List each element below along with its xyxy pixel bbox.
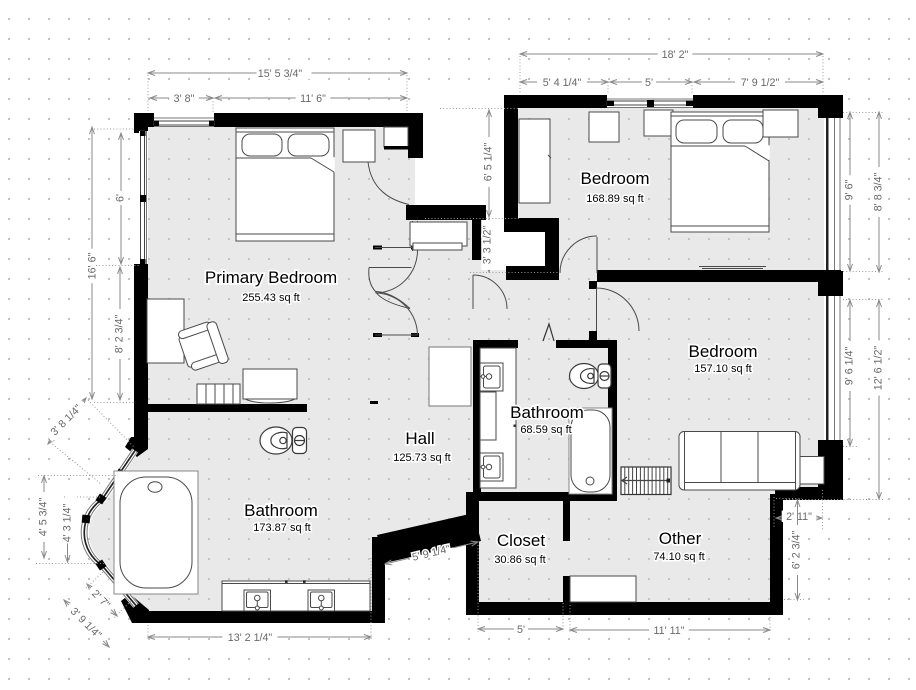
svg-text:Bedroom: Bedroom [581, 169, 650, 188]
svg-text:7' 9 1/2": 7' 9 1/2" [741, 77, 780, 89]
svg-text:9' 6 1/4": 9' 6 1/4" [844, 347, 856, 386]
svg-text:11' 11": 11' 11" [654, 625, 685, 637]
svg-text:4' 5 3/4": 4' 5 3/4" [38, 498, 50, 537]
svg-text:12' 6 1/2": 12' 6 1/2" [873, 346, 885, 391]
svg-text:Closet: Closet [497, 531, 545, 550]
svg-text:15' 5 3/4": 15' 5 3/4" [258, 68, 303, 80]
svg-text:13' 2 1/4": 13' 2 1/4" [228, 632, 273, 644]
svg-text:5': 5' [645, 77, 653, 89]
svg-text:Bathroom: Bathroom [244, 501, 318, 520]
svg-text:5': 5' [517, 624, 525, 636]
svg-text:8' 2 3/4": 8' 2 3/4" [114, 315, 126, 354]
svg-text:4' 3 1/4": 4' 3 1/4" [62, 504, 74, 543]
svg-text:168.89 sq ft: 168.89 sq ft [586, 193, 644, 205]
svg-text:6': 6' [115, 194, 127, 202]
svg-text:125.73 sq ft: 125.73 sq ft [393, 452, 451, 464]
svg-text:3' 3 1/2": 3' 3 1/2" [482, 226, 494, 265]
svg-text:Bathroom: Bathroom [510, 403, 584, 422]
svg-text:157.10 sq ft: 157.10 sq ft [694, 363, 752, 375]
svg-text:6' 5 1/4": 6' 5 1/4" [483, 143, 495, 182]
svg-text:Primary Bedroom: Primary Bedroom [205, 268, 337, 287]
svg-text:6' 2 3/4": 6' 2 3/4" [791, 531, 803, 570]
svg-text:Bedroom: Bedroom [689, 342, 758, 361]
svg-text:2' 11": 2' 11" [786, 511, 812, 523]
svg-text:11' 6": 11' 6" [300, 93, 326, 105]
svg-text:9' 6": 9' 6" [844, 179, 856, 200]
svg-text:68.59 sq ft: 68.59 sq ft [520, 424, 571, 436]
svg-text:173.87 sq ft: 173.87 sq ft [253, 522, 311, 534]
svg-text:Other: Other [659, 529, 702, 548]
svg-text:18' 2": 18' 2" [662, 49, 689, 61]
svg-text:255.43 sq ft: 255.43 sq ft [242, 292, 300, 304]
svg-text:74.10 sq ft: 74.10 sq ft [653, 551, 704, 563]
svg-text:8' 8 3/4": 8' 8 3/4" [873, 173, 885, 212]
svg-text:3' 8": 3' 8" [174, 93, 195, 105]
svg-text:5' 4 1/4": 5' 4 1/4" [543, 77, 582, 89]
svg-text:30.86 sq ft: 30.86 sq ft [494, 554, 545, 566]
svg-text:Hall: Hall [405, 429, 434, 448]
